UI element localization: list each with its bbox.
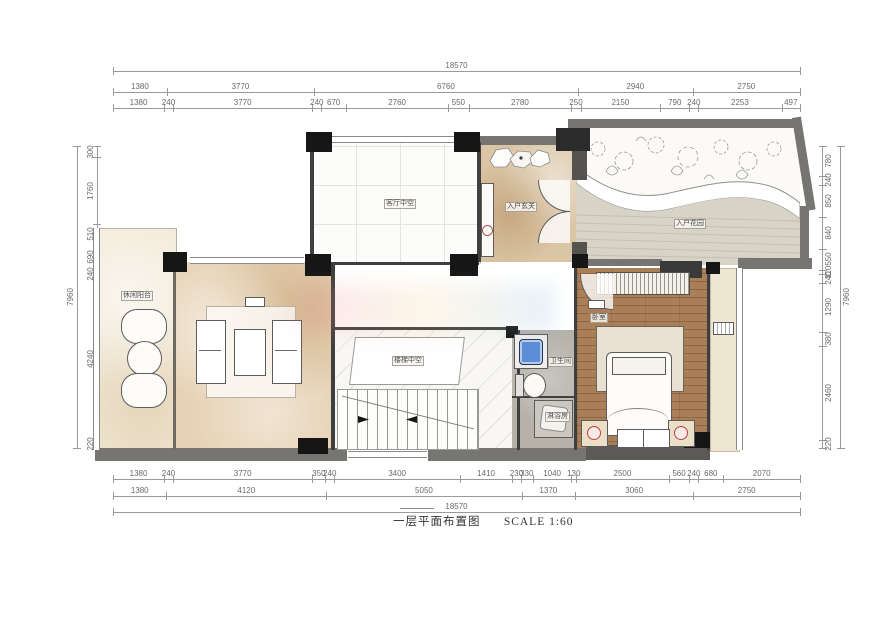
nightstand-lamp <box>587 426 601 440</box>
dim-segment: 240 <box>164 95 173 108</box>
watermark <box>300 284 555 332</box>
dim-value: 1410 <box>477 470 495 478</box>
coffee-table <box>234 329 266 376</box>
dim-segment: 3400 <box>334 466 460 479</box>
dim-segment: 1040 <box>533 466 571 479</box>
armchair-right-line <box>275 350 297 351</box>
dim-segment: 240 <box>823 176 836 185</box>
dim-segment: 18570 <box>113 58 800 71</box>
dim-segment: 1380 <box>113 95 164 108</box>
dim-segment: 2750 <box>693 79 800 92</box>
dim-value: 18570 <box>445 503 467 511</box>
dim-value: 497 <box>784 99 797 107</box>
dim-segment: 2253 <box>698 95 781 108</box>
dim-segment: 2070 <box>723 466 800 479</box>
dim-value: 1380 <box>131 487 149 495</box>
living-sideboard <box>245 297 265 307</box>
toilet-bowl <box>523 373 546 398</box>
dim-segment: 3770 <box>173 95 312 108</box>
entry-stones <box>488 145 552 171</box>
dim-value: 4120 <box>237 487 255 495</box>
dim-value: 2070 <box>753 470 771 478</box>
wall-column <box>572 254 588 268</box>
wall-column <box>454 132 480 152</box>
dim-segment: 2150 <box>581 95 661 108</box>
dim-segment: 3770 <box>167 79 314 92</box>
wall-bedroom-top <box>588 259 662 266</box>
dim-value: 1380 <box>130 470 148 478</box>
dim-value: 300 <box>87 145 95 158</box>
armchair-right <box>272 320 302 384</box>
dim-value: 2750 <box>738 487 756 495</box>
balcony-table <box>127 341 162 376</box>
bed-pillow <box>612 357 666 375</box>
dim-value: 2150 <box>611 99 629 107</box>
dim-value: 6760 <box>437 83 455 91</box>
dim-segment: 240 <box>823 274 836 283</box>
dim-segment: 3770 <box>173 466 312 479</box>
dim-value: 220 <box>825 437 833 450</box>
dim-segment: 670 <box>321 95 346 108</box>
wall-column <box>163 252 187 272</box>
dim-segment: 330 <box>521 466 533 479</box>
dim-value: 550 <box>825 253 833 266</box>
drawing-title: 一层平面布置图 SCALE 1:60 <box>393 513 574 529</box>
dim-segment: 1290 <box>823 283 836 332</box>
dim-segment: 7960 <box>841 146 854 448</box>
dim-segment: 2780 <box>469 95 572 108</box>
dim-segment: 240 <box>325 466 334 479</box>
dim-segment: 1760 <box>84 157 97 224</box>
dim-segment: 240 <box>164 466 173 479</box>
ac-unit <box>713 322 734 335</box>
room-label-balcony: 休闲阳台 <box>121 291 153 301</box>
dim-segment: 380 <box>823 332 836 346</box>
dim-segment: 7960 <box>64 146 77 448</box>
nightstand-lamp <box>674 426 688 440</box>
room-label-bedroom: 卧室 <box>590 313 608 323</box>
dim-segment: 497 <box>782 95 800 108</box>
dim-value: 670 <box>327 99 340 107</box>
dim-value: 1370 <box>539 487 557 495</box>
dim-segment: 2750 <box>693 483 800 496</box>
dim-segment: 680 <box>698 466 723 479</box>
dim-value: 2460 <box>825 384 833 402</box>
dim-segment: 4120 <box>166 483 326 496</box>
drawing-scale-text: SCALE 1:60 <box>504 516 574 528</box>
dim-value: 2760 <box>388 99 406 107</box>
dim-segment: 2760 <box>346 95 448 108</box>
wall-column <box>706 262 720 274</box>
wall-void-left <box>310 142 314 262</box>
dim-segment: 2500 <box>576 466 668 479</box>
dim-segment: 550 <box>448 95 468 108</box>
dim-value: 3770 <box>232 83 250 91</box>
dim-bottom-row2: 138041205050137030602750 <box>113 483 800 497</box>
dim-segment: 18570 <box>113 499 800 512</box>
garden-sketch <box>576 127 800 265</box>
dim-segment: 840 <box>823 217 836 249</box>
dim-segment: 240 <box>689 466 698 479</box>
bed-foot-stool <box>643 429 670 448</box>
dim-value: 1290 <box>825 299 833 317</box>
balcony-chair <box>121 373 167 408</box>
dim-value: 850 <box>825 194 833 207</box>
dim-segment: 2940 <box>578 79 693 92</box>
wall-garden-bottom <box>738 258 812 269</box>
dim-right-row1: 78024085084055011024012903802460220 <box>822 146 836 448</box>
dim-segment: 1380 <box>113 466 164 479</box>
dim-value: 1380 <box>130 99 148 107</box>
wall-entry-top <box>478 136 560 145</box>
dim-segment: 220 <box>823 440 836 448</box>
dim-segment: 790 <box>660 95 689 108</box>
dim-value: 7960 <box>843 288 851 306</box>
dim-value: 5050 <box>415 487 433 495</box>
dim-segment: 3060 <box>575 483 694 496</box>
dim-value: 1760 <box>87 182 95 200</box>
dim-value: 3400 <box>388 470 406 478</box>
dim-value: 550 <box>452 99 465 107</box>
room-label-garden: 入户花园 <box>674 219 706 229</box>
dim-segment: 250 <box>571 95 580 108</box>
dim-value: 840 <box>825 226 833 239</box>
dim-bottom-row1: 1380240377035024034001410230330104013025… <box>113 466 800 480</box>
title-overline <box>400 508 434 509</box>
wall-garden-right <box>800 206 809 261</box>
dim-segment: 1380 <box>113 79 167 92</box>
window-bottom-stairs <box>348 451 427 458</box>
wall-bedroom-bay <box>707 268 710 450</box>
dim-value: 2750 <box>737 83 755 91</box>
room-label-stair-void: 楼梯中空 <box>392 356 424 366</box>
room-label-shower: 淋浴房 <box>545 412 570 422</box>
wall-column <box>306 132 332 152</box>
wall-balcony-living <box>173 262 176 450</box>
bed-foot-stool <box>617 429 644 448</box>
dim-segment: 1380 <box>113 483 166 496</box>
dim-value: 380 <box>825 332 833 345</box>
wall-column <box>556 128 590 151</box>
dim-segment: 300 <box>84 146 97 157</box>
dim-value: 330 <box>520 470 533 478</box>
dim-value: 2940 <box>626 83 644 91</box>
wall-garden-top <box>568 119 800 128</box>
dim-value: 2500 <box>613 470 631 478</box>
dim-left-overall: 7960 <box>64 146 78 448</box>
dim-value: 3060 <box>625 487 643 495</box>
dim-top-row2: 13803770676029402750 <box>113 79 800 93</box>
entry-console <box>481 183 494 257</box>
dim-segment: 780 <box>823 146 836 176</box>
dim-value: 780 <box>825 154 833 167</box>
dim-value: 790 <box>668 99 681 107</box>
dim-value: 3770 <box>234 99 252 107</box>
dim-top-overall: 18570 <box>113 58 800 72</box>
room-label-living-void: 客厅中空 <box>384 199 416 209</box>
dim-segment: 240 <box>312 95 321 108</box>
balcony-chair <box>121 309 167 344</box>
room-label-entry: 入户玄关 <box>505 202 537 212</box>
window-bay-right <box>736 268 743 450</box>
window-living-top <box>190 257 304 264</box>
armchair-left-line <box>199 350 221 351</box>
window-balcony-left <box>93 228 100 450</box>
dim-segment: 850 <box>823 185 836 217</box>
window-void-top <box>332 136 454 143</box>
room-label-bathroom: 卫生间 <box>548 357 573 367</box>
dim-value: 2253 <box>731 99 749 107</box>
armchair-left <box>196 320 226 384</box>
dim-value: 3770 <box>234 470 252 478</box>
dim-value: 1380 <box>131 83 149 91</box>
dim-segment: 6760 <box>314 79 578 92</box>
entry-console-decor <box>482 225 493 236</box>
dim-bottom-overall: 18570 <box>113 499 800 513</box>
dim-segment: 240 <box>689 95 698 108</box>
dim-top-row3: 1380240377024067027605502780250215079024… <box>113 95 800 109</box>
dim-segment: 1410 <box>460 466 512 479</box>
floorplan-canvas: 18570 13803770676029402750 1380240377024… <box>0 0 878 629</box>
dim-segment: 1370 <box>522 483 575 496</box>
wall-bath-bedroom <box>574 268 577 450</box>
dim-segment: 2460 <box>823 346 836 439</box>
dim-value: 18570 <box>445 62 467 70</box>
dim-right-overall: 7960 <box>840 146 854 448</box>
dim-value: 7960 <box>67 288 75 306</box>
dim-value: 560 <box>672 470 685 478</box>
dim-segment: 5050 <box>326 483 522 496</box>
dim-value: 680 <box>704 470 717 478</box>
bedroom-switch-panel <box>588 300 605 309</box>
wall-column <box>298 438 328 454</box>
bath-sink <box>519 339 543 365</box>
wall-column <box>450 254 478 276</box>
wall-column <box>305 254 331 276</box>
dim-value: 1040 <box>543 470 561 478</box>
drawing-title-text: 一层平面布置图 <box>393 514 481 528</box>
dim-value: 2780 <box>511 99 529 107</box>
